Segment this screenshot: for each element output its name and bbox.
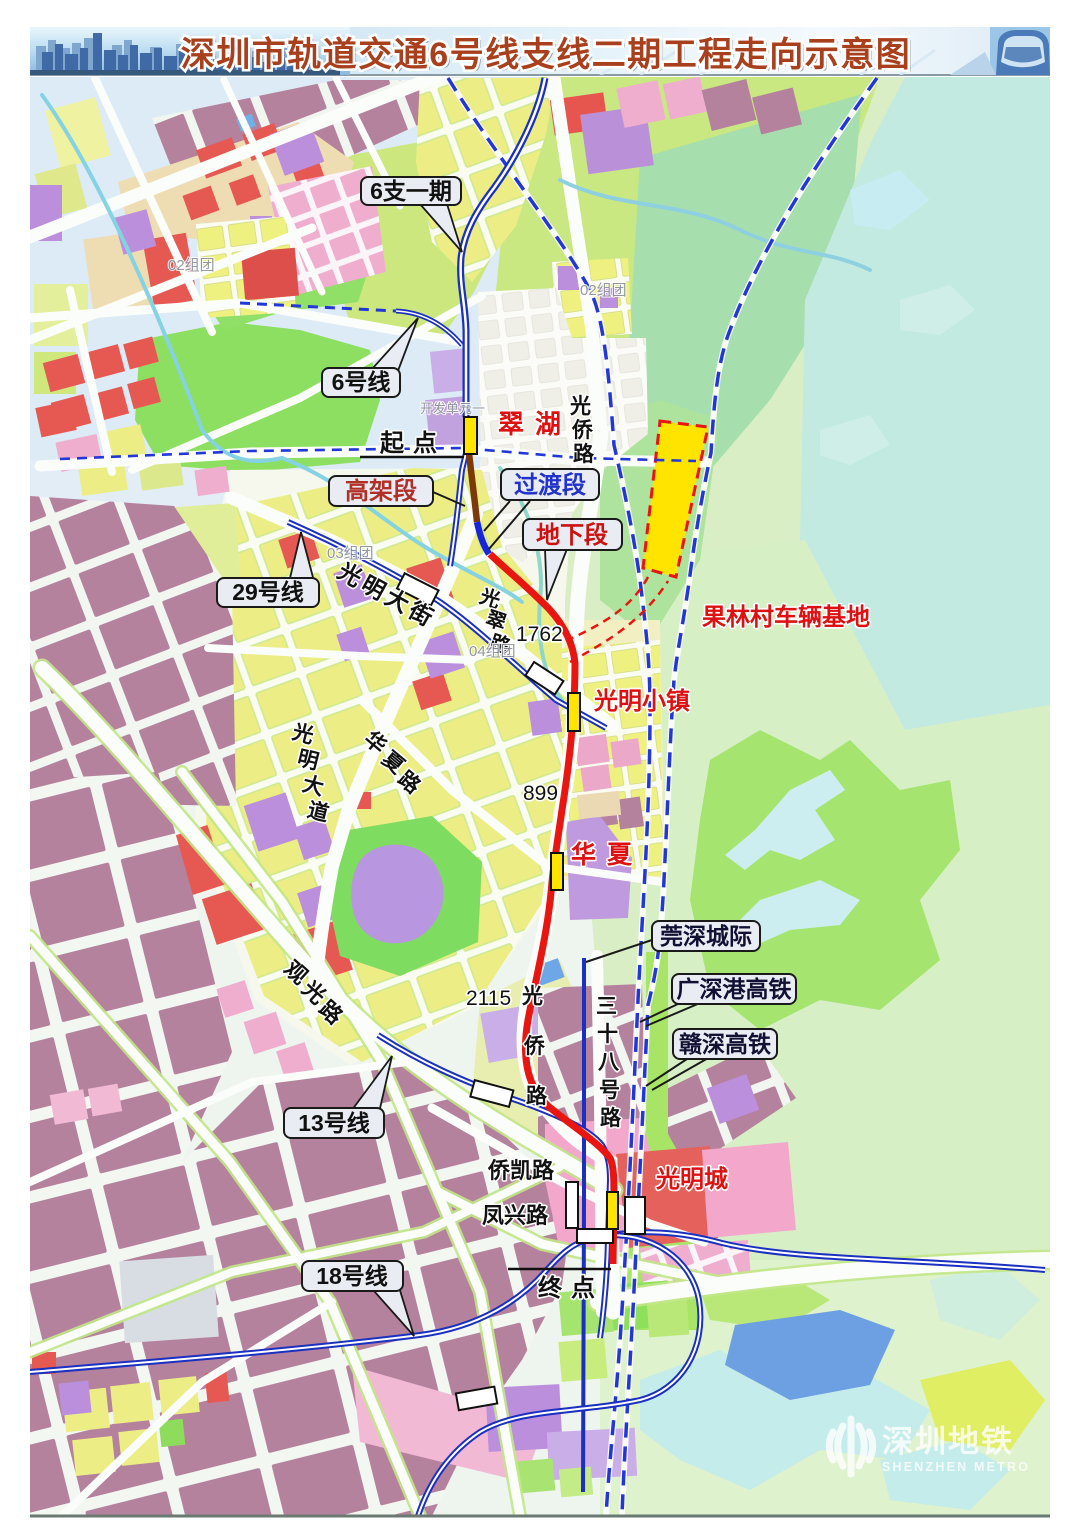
svg-text:13号线: 13号线 <box>298 1110 370 1136</box>
svg-text:侨: 侨 <box>523 1034 546 1058</box>
svg-text:光: 光 <box>521 985 543 1008</box>
svg-text:02组团: 02组团 <box>168 257 215 274</box>
svg-text:路: 路 <box>600 1106 622 1130</box>
svg-text:18号线: 18号线 <box>316 1263 388 1289</box>
svg-text:1762: 1762 <box>516 623 563 646</box>
svg-text:光明小镇: 光明小镇 <box>593 688 690 715</box>
svg-text:路: 路 <box>526 1084 548 1108</box>
svg-text:侨: 侨 <box>571 418 594 442</box>
svg-text:侨凯路: 侨凯路 <box>487 1158 555 1183</box>
svg-text:深圳市轨道交通6号线支线二期工程走向示意图: 深圳市轨道交通6号线支线二期工程走向示意图 <box>181 35 911 74</box>
svg-text:899: 899 <box>523 782 558 805</box>
svg-text:6号线: 6号线 <box>332 369 391 395</box>
svg-text:深圳地铁: 深圳地铁 <box>882 1424 1014 1459</box>
svg-text:三: 三 <box>596 995 617 1018</box>
svg-text:十: 十 <box>597 1023 618 1046</box>
svg-text:路: 路 <box>573 442 595 466</box>
svg-text:八: 八 <box>598 1051 620 1074</box>
svg-text:终点: 终点 <box>538 1274 604 1302</box>
svg-text:6支一期: 6支一期 <box>370 178 452 204</box>
svg-text:开发单元一: 开发单元一 <box>420 401 485 416</box>
svg-text:赣深高铁: 赣深高铁 <box>679 1031 771 1057</box>
svg-text:号: 号 <box>599 1079 620 1102</box>
svg-text:光明城: 光明城 <box>655 1165 728 1193</box>
svg-text:光: 光 <box>569 395 591 418</box>
svg-text:02组团: 02组团 <box>580 282 627 299</box>
svg-text:果林村车辆基地: 果林村车辆基地 <box>702 603 870 631</box>
svg-text:04组团: 04组团 <box>469 643 516 660</box>
svg-text:华夏: 华夏 <box>571 840 643 869</box>
svg-text:过渡段: 过渡段 <box>514 471 586 499</box>
svg-text:起点: 起点 <box>379 430 446 457</box>
svg-text:高架段: 高架段 <box>345 477 417 505</box>
svg-text:翠湖: 翠湖 <box>498 409 572 439</box>
svg-text:广深港高铁: 广深港高铁 <box>677 976 792 1002</box>
svg-text:凤兴路: 凤兴路 <box>482 1203 549 1228</box>
svg-text:地下段: 地下段 <box>536 521 608 549</box>
svg-text:SHENZHEN METRO: SHENZHEN METRO <box>882 1460 1030 1474</box>
svg-text:2115: 2115 <box>466 987 511 1010</box>
svg-text:03组团: 03组团 <box>327 545 374 562</box>
svg-text:莞深城际: 莞深城际 <box>660 923 752 949</box>
svg-text:29号线: 29号线 <box>232 579 304 605</box>
